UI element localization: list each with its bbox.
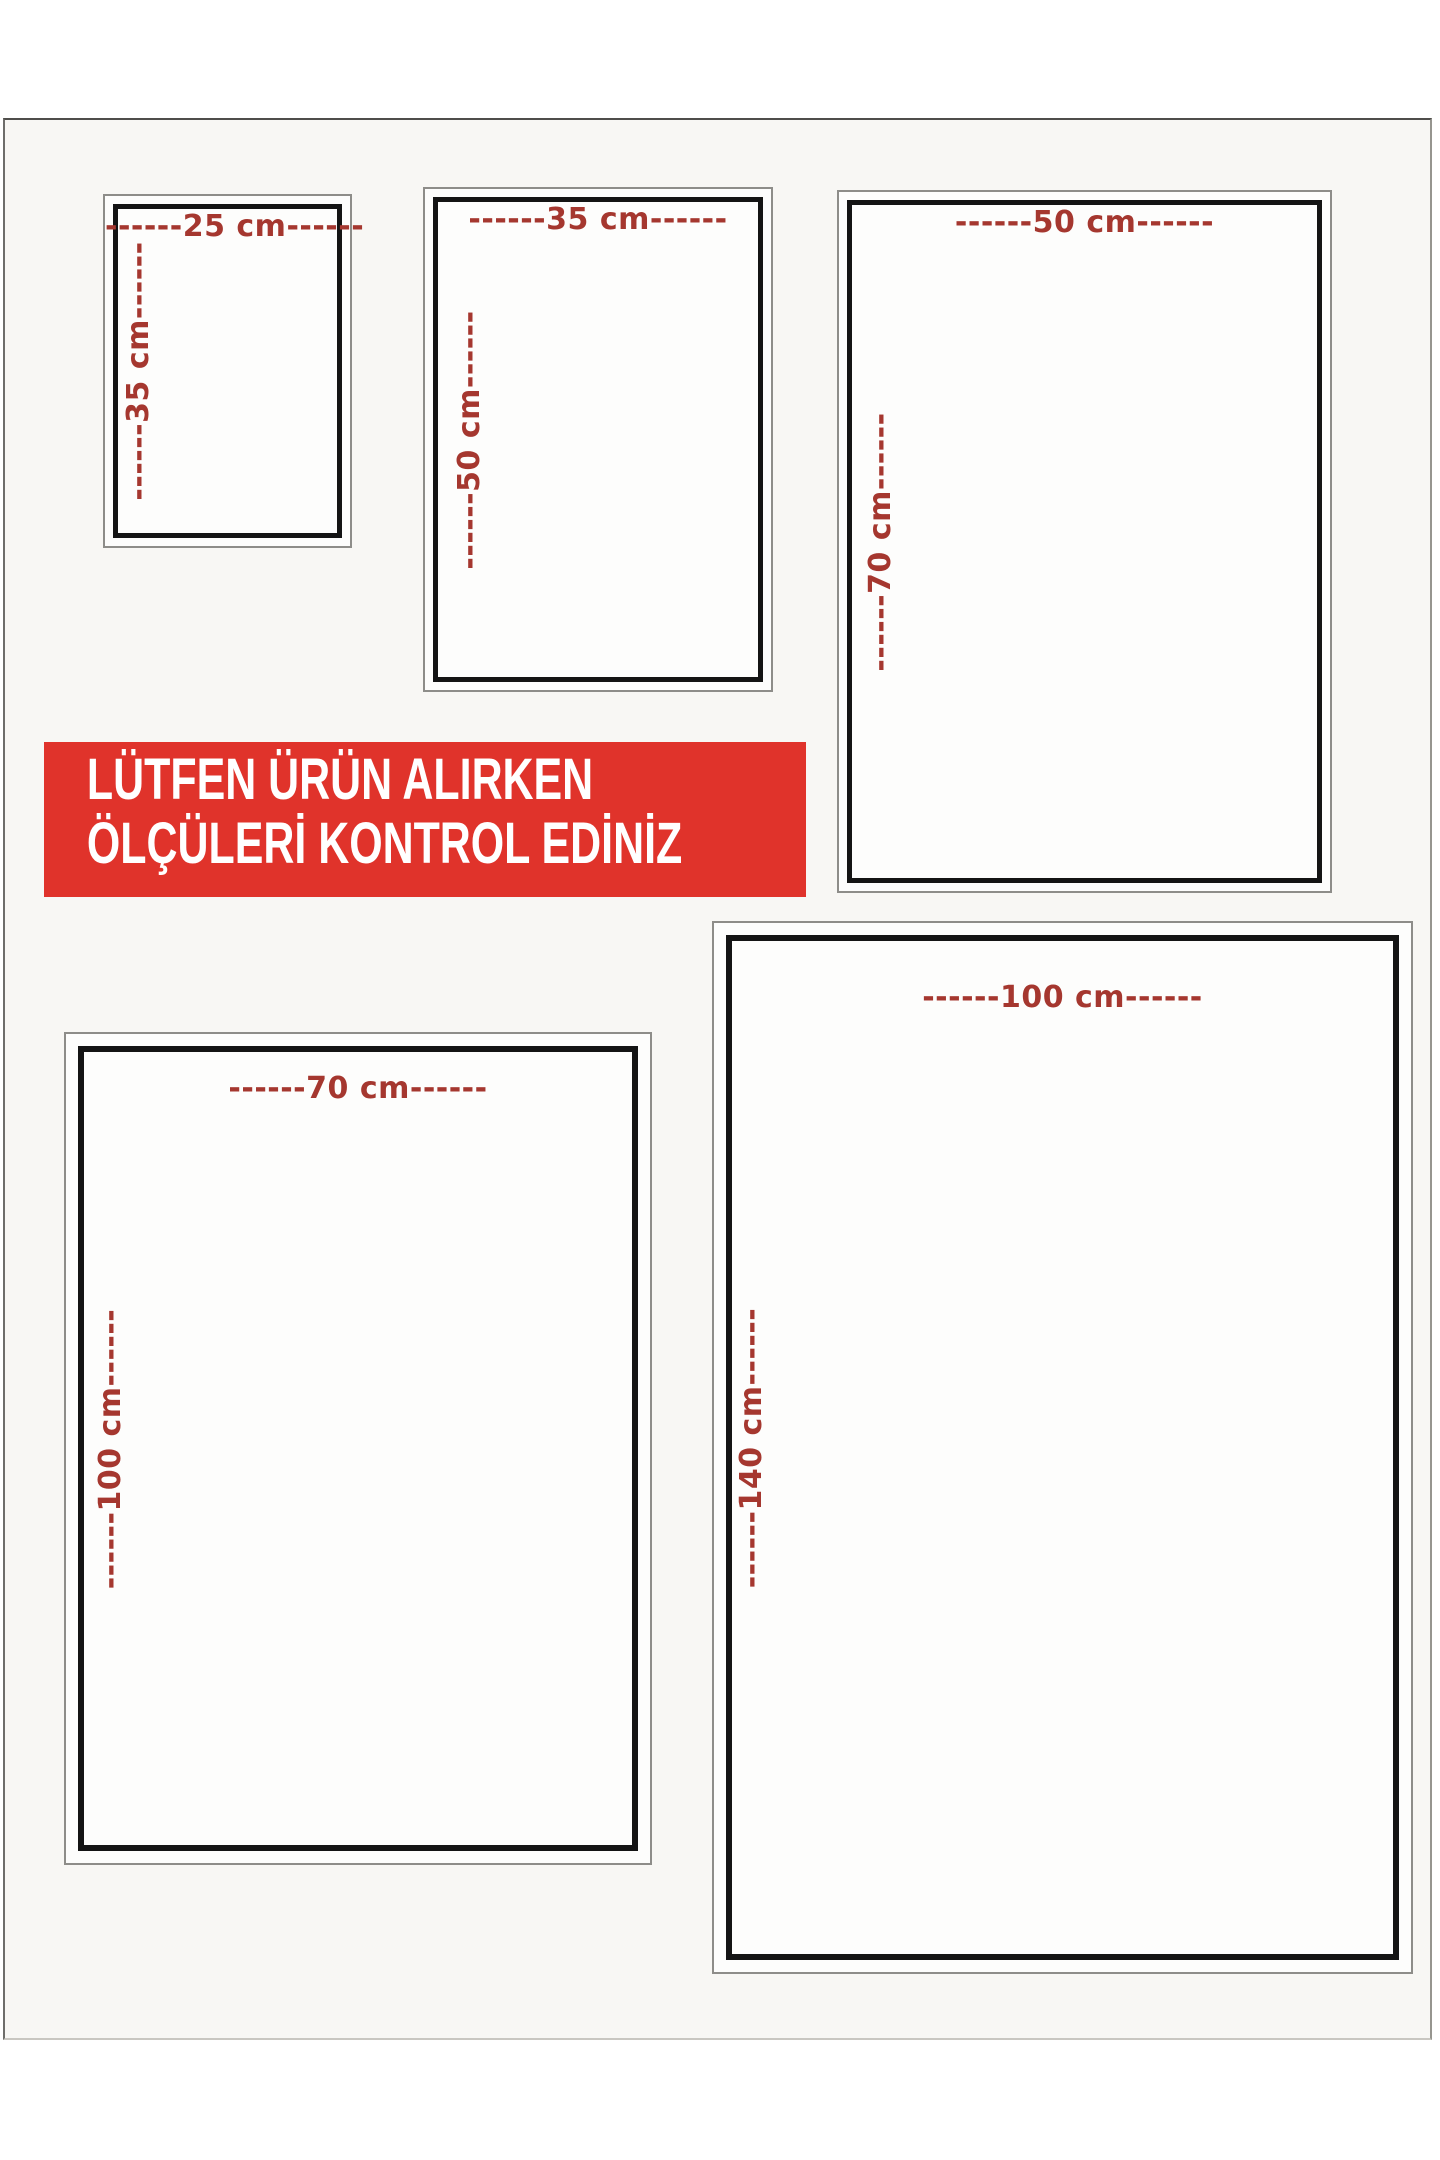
warning-banner: LÜTFEN ÜRÜN ALIRKEN ÖLÇÜLERİ KONTROL EDİ… [44, 742, 806, 897]
size-box-25x35: ------25 cm------ ------35 cm------ [103, 194, 352, 548]
height-dimension-label: ------140 cm------ [735, 1307, 769, 1588]
height-dimension-label: ------50 cm------ [453, 310, 487, 569]
width-dimension-label: ------100 cm------ [714, 981, 1411, 1015]
width-dimension-label: ------70 cm------ [66, 1072, 650, 1106]
size-box-70x100-inner-border [78, 1046, 638, 1851]
size-guide-page: ------25 cm------ ------35 cm------ ----… [0, 0, 1440, 2160]
size-box-70x100: ------70 cm------ ------100 cm------ [64, 1032, 652, 1865]
height-dimension-label: ------35 cm------ [122, 241, 156, 500]
height-dimension-label: ------70 cm------ [864, 412, 898, 671]
warning-banner-line-1: LÜTFEN ÜRÜN ALIRKEN [44, 748, 608, 812]
width-dimension-label: ------25 cm------ [105, 210, 350, 244]
size-box-100x140-inner-border [726, 935, 1399, 1960]
warning-banner-line-2: ÖLÇÜLERİ KONTROL EDİNİZ [44, 812, 608, 876]
size-box-50x70-inner-border [847, 200, 1322, 883]
size-box-100x140: ------100 cm------ ------140 cm------ [712, 921, 1413, 1974]
width-dimension-label: ------35 cm------ [425, 203, 771, 237]
width-dimension-label: ------50 cm------ [839, 206, 1330, 240]
size-box-35x50: ------35 cm------ ------50 cm------ [423, 187, 773, 692]
height-dimension-label: ------100 cm------ [94, 1308, 128, 1589]
size-box-50x70: ------50 cm------ ------70 cm------ [837, 190, 1332, 893]
